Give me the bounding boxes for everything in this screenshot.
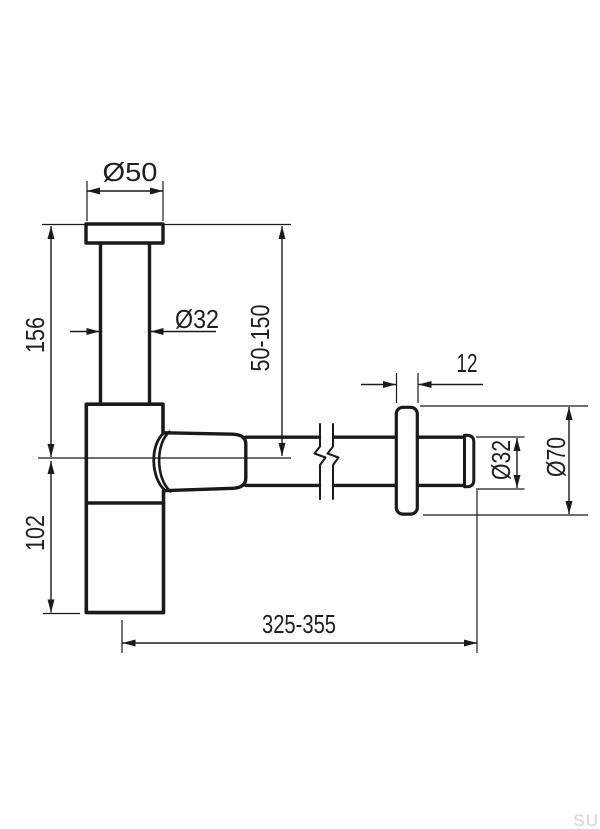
outlet-pipe-end-segment bbox=[418, 437, 465, 485]
dimension-label: Ø70 bbox=[541, 437, 571, 477]
outlet-end-cap bbox=[465, 435, 474, 487]
dim-inlet-height-range: 50-150 bbox=[245, 226, 282, 456]
dim-outlet-pipe-diameter: Ø32 bbox=[476, 437, 525, 489]
outlet-pipe-right-segment bbox=[334, 437, 397, 485]
inlet-flange bbox=[86, 224, 163, 243]
dimension-label: 102 bbox=[20, 515, 50, 551]
dimension-label: Ø32 bbox=[486, 440, 516, 480]
dimension-label: 12 bbox=[457, 348, 478, 378]
dim-body-height: 156 bbox=[20, 226, 51, 457]
fixture-outline bbox=[86, 224, 474, 613]
dimension-label: 325-355 bbox=[262, 609, 336, 639]
break-mark-left bbox=[315, 424, 326, 499]
bottle-trap-technical-drawing: Ø50 Ø32 50-150 156 102 12 bbox=[0, 0, 600, 829]
break-mark-right bbox=[328, 424, 339, 499]
dim-inlet-pipe-diameter: Ø32 bbox=[70, 304, 219, 334]
inlet-pipe bbox=[101, 244, 150, 405]
dim-rosette-thickness: 12 bbox=[361, 348, 483, 403]
extension-line bbox=[87, 181, 163, 221]
trap-body bbox=[86, 404, 163, 612]
compression-joint-inner-arc bbox=[159, 432, 170, 492]
dimension-label: 50-150 bbox=[245, 305, 275, 372]
coupling-nut bbox=[166, 433, 246, 491]
watermark-text: SU bbox=[573, 811, 599, 829]
dim-cup-height: 102 bbox=[20, 461, 80, 614]
extension-line bbox=[397, 373, 419, 403]
dim-top-flange-diameter: Ø50 bbox=[87, 157, 163, 221]
wall-rosette bbox=[396, 407, 417, 514]
dimension-label: 156 bbox=[20, 317, 50, 353]
drawing-canvas: Ø50 Ø32 50-150 156 102 12 bbox=[0, 0, 600, 829]
dimension-label: Ø50 bbox=[103, 157, 158, 187]
dimension-label: Ø32 bbox=[175, 304, 219, 334]
